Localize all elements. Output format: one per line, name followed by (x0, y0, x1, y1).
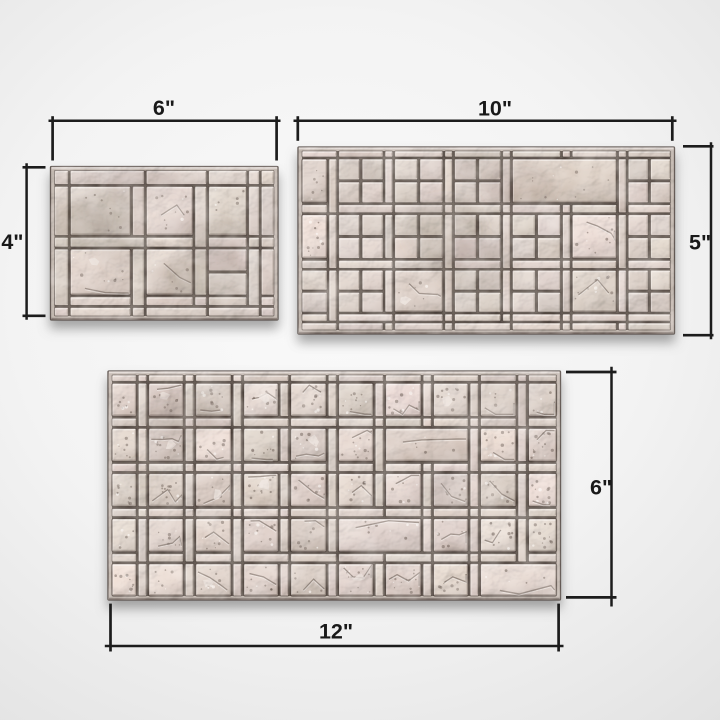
svg-text:5": 5" (689, 231, 711, 255)
svg-text:10": 10" (478, 97, 512, 121)
svg-text:12": 12" (319, 620, 353, 644)
svg-text:4": 4" (1, 230, 23, 254)
svg-text:6": 6" (153, 96, 175, 120)
svg-text:6": 6" (590, 476, 612, 500)
